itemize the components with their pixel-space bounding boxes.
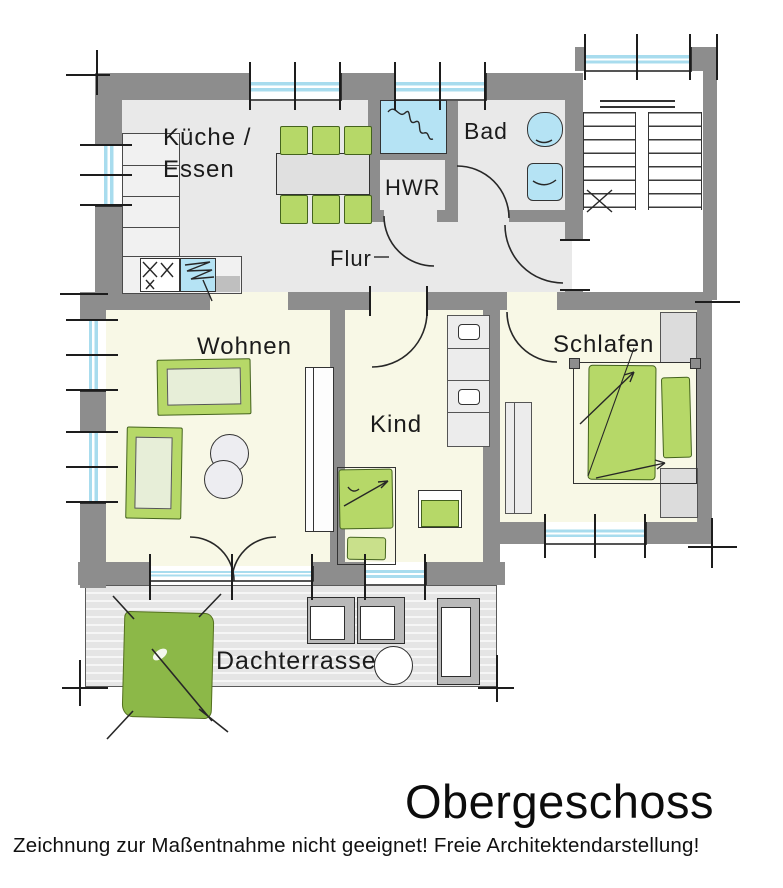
coffee-table — [204, 460, 243, 499]
closet-divider — [448, 412, 489, 413]
wall-segment — [95, 73, 122, 145]
sofa-cushion — [167, 367, 242, 405]
counter-step — [216, 276, 240, 292]
dining-table — [276, 153, 370, 195]
window-bath-top — [395, 73, 487, 100]
child-bed-blanket — [338, 469, 393, 530]
window-stairwell-top — [585, 47, 692, 71]
wall-segment — [80, 390, 106, 432]
wall-segment — [703, 47, 717, 300]
kitchen-sink — [180, 258, 216, 292]
child-desk-chair — [421, 500, 459, 527]
window-bedroom-south — [545, 522, 647, 544]
room-label-wohnen: Wohnen — [197, 331, 292, 363]
wall-segment — [565, 73, 583, 240]
dining-chair — [344, 126, 372, 155]
lounger-seat — [441, 607, 471, 677]
plan-title: Obergeschoss — [378, 774, 714, 829]
sofa-cushion — [134, 437, 172, 510]
window-kitchen-west — [95, 145, 122, 207]
toilet — [527, 112, 563, 147]
plan-disclaimer: Zeichnung zur Maßentnahme nicht geeignet… — [13, 834, 778, 858]
wall-segment — [80, 292, 106, 320]
bed-pillow — [661, 377, 692, 459]
wall-segment — [427, 292, 507, 310]
wall-segment — [483, 522, 545, 544]
shelf — [305, 367, 334, 532]
shelf-divider — [313, 368, 314, 531]
stair-landing-edge — [600, 106, 675, 108]
closet-divider — [448, 380, 489, 381]
wall-segment — [340, 73, 395, 100]
bedroom-sideboard — [505, 402, 532, 514]
dining-chair — [280, 195, 308, 224]
closet-handle — [458, 389, 480, 405]
wall-segment — [288, 292, 370, 310]
cooktop — [140, 258, 180, 292]
wall-segment — [557, 292, 710, 310]
floor-plan-page: Küche / Essen HWR Bad Flur Wohnen Kind S… — [0, 0, 783, 888]
stair-flight-right — [647, 112, 702, 210]
dining-chair — [344, 195, 372, 224]
sofa-large — [157, 358, 252, 416]
room-label-bad: Bad — [464, 116, 508, 147]
counter-divider — [123, 227, 179, 228]
dining-chair — [280, 126, 308, 155]
room-label-dachterrasse: Dachterrasse — [216, 645, 377, 679]
room-label-kind: Kind — [370, 409, 422, 441]
wall-segment — [78, 562, 150, 585]
child-bed-pillow — [347, 537, 386, 561]
room-label-hwr: HWR — [385, 173, 441, 203]
dining-chair — [312, 195, 340, 224]
room-label-flur: Flur — [330, 244, 372, 274]
counter-divider — [123, 196, 179, 197]
room-label-schlafen: Schlafen — [553, 329, 654, 361]
stair-landing-edge — [600, 100, 675, 102]
terrace-lounger — [437, 598, 480, 685]
room-label-kueche-essen: Küche / Essen — [163, 122, 251, 187]
closet-handle — [458, 324, 480, 340]
stair-stringer — [635, 112, 649, 210]
window-child-south — [365, 562, 427, 585]
terrace-chair — [307, 597, 355, 644]
window-living-west-1 — [80, 320, 106, 392]
wall-segment — [95, 205, 122, 292]
terrace-table — [374, 646, 413, 685]
wall-segment — [485, 73, 575, 100]
stair-flight-left — [583, 112, 637, 210]
bath-sink — [527, 163, 563, 201]
shower — [380, 100, 447, 154]
bed-post — [690, 358, 701, 369]
window-living-west-2 — [80, 432, 106, 504]
terrace-awning — [122, 611, 215, 719]
sideboard-divider — [514, 403, 515, 513]
bedroom-wardrobe — [660, 312, 697, 363]
chair-seat — [310, 606, 345, 640]
sofa-small — [125, 427, 183, 520]
wall-segment — [437, 210, 457, 222]
dining-chair — [312, 126, 340, 155]
wall-segment — [509, 210, 565, 222]
bed-blanket — [587, 365, 656, 481]
wall-segment — [697, 292, 712, 544]
chair-seat — [360, 606, 395, 640]
wall-segment — [575, 47, 585, 71]
closet-divider — [448, 348, 489, 349]
terrace-chair — [357, 597, 405, 644]
child-closet — [447, 315, 490, 447]
window-terrace-threshold — [150, 566, 314, 581]
window-kitchen-top — [250, 73, 342, 100]
